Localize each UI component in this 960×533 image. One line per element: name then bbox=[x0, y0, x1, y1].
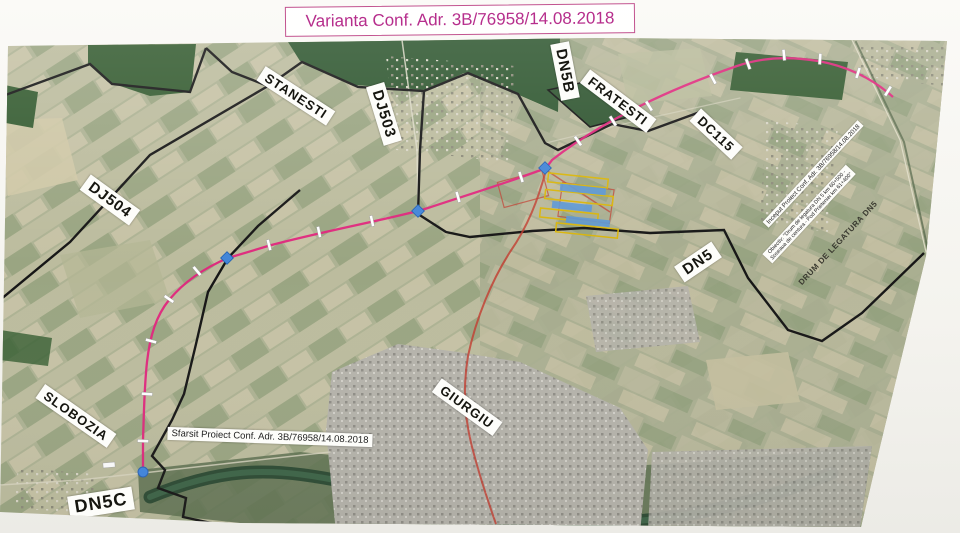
variant-title-box: Varianta Conf. Adr. 3B/76958/14.08.2018 bbox=[285, 3, 635, 37]
satellite-map: STANESTI DJ503 DN5B FRATESTI DC115 DJ504… bbox=[0, 0, 960, 533]
map-page: STANESTI DJ503 DN5B FRATESTI DC115 DJ504… bbox=[0, 0, 960, 533]
variant-title-text: Varianta Conf. Adr. 3B/76958/14.08.2018 bbox=[306, 8, 615, 31]
